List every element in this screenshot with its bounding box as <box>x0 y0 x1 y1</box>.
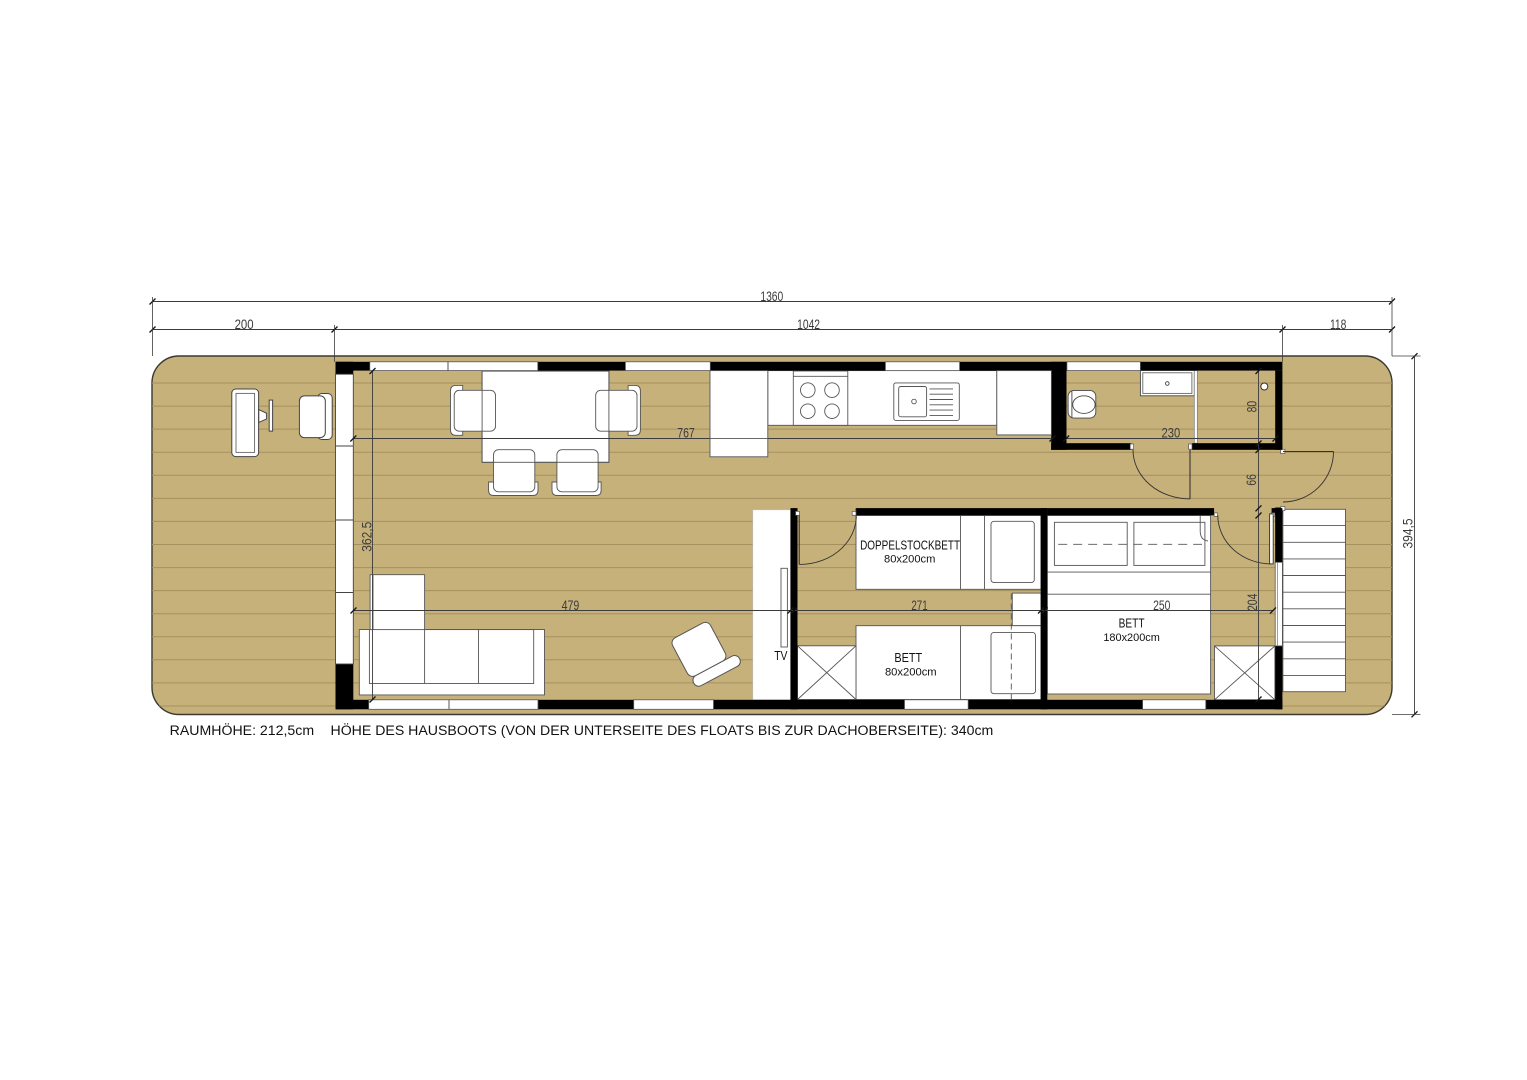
svg-text:RAUMHÖHE: 212,5cm: RAUMHÖHE: 212,5cm <box>170 721 314 738</box>
svg-text:180x200cm: 180x200cm <box>1103 632 1160 644</box>
svg-text:362,5: 362,5 <box>359 521 374 551</box>
svg-text:394,5: 394,5 <box>1401 518 1416 548</box>
svg-text:1360: 1360 <box>760 289 783 304</box>
svg-text:66: 66 <box>1244 474 1259 486</box>
svg-text:200: 200 <box>235 317 254 332</box>
svg-text:118: 118 <box>1330 317 1347 332</box>
svg-text:204: 204 <box>1245 593 1260 611</box>
svg-text:271: 271 <box>911 598 927 613</box>
svg-text:230: 230 <box>1162 426 1181 441</box>
svg-text:BETT: BETT <box>1119 616 1145 631</box>
svg-text:1042: 1042 <box>797 317 820 332</box>
svg-text:HÖHE DES HAUSBOOTS (VON DER UN: HÖHE DES HAUSBOOTS (VON DER UNTERSEITE D… <box>331 721 994 738</box>
svg-text:BETT: BETT <box>894 650 922 665</box>
svg-text:TV: TV <box>774 648 787 663</box>
svg-text:80: 80 <box>1244 401 1259 413</box>
svg-text:DOPPELSTOCKBETT: DOPPELSTOCKBETT <box>860 537 960 552</box>
svg-text:80x200cm: 80x200cm <box>885 667 937 679</box>
svg-text:479: 479 <box>562 598 580 613</box>
svg-text:250: 250 <box>1153 598 1171 613</box>
svg-text:80x200cm: 80x200cm <box>884 554 935 566</box>
svg-text:767: 767 <box>677 426 695 441</box>
